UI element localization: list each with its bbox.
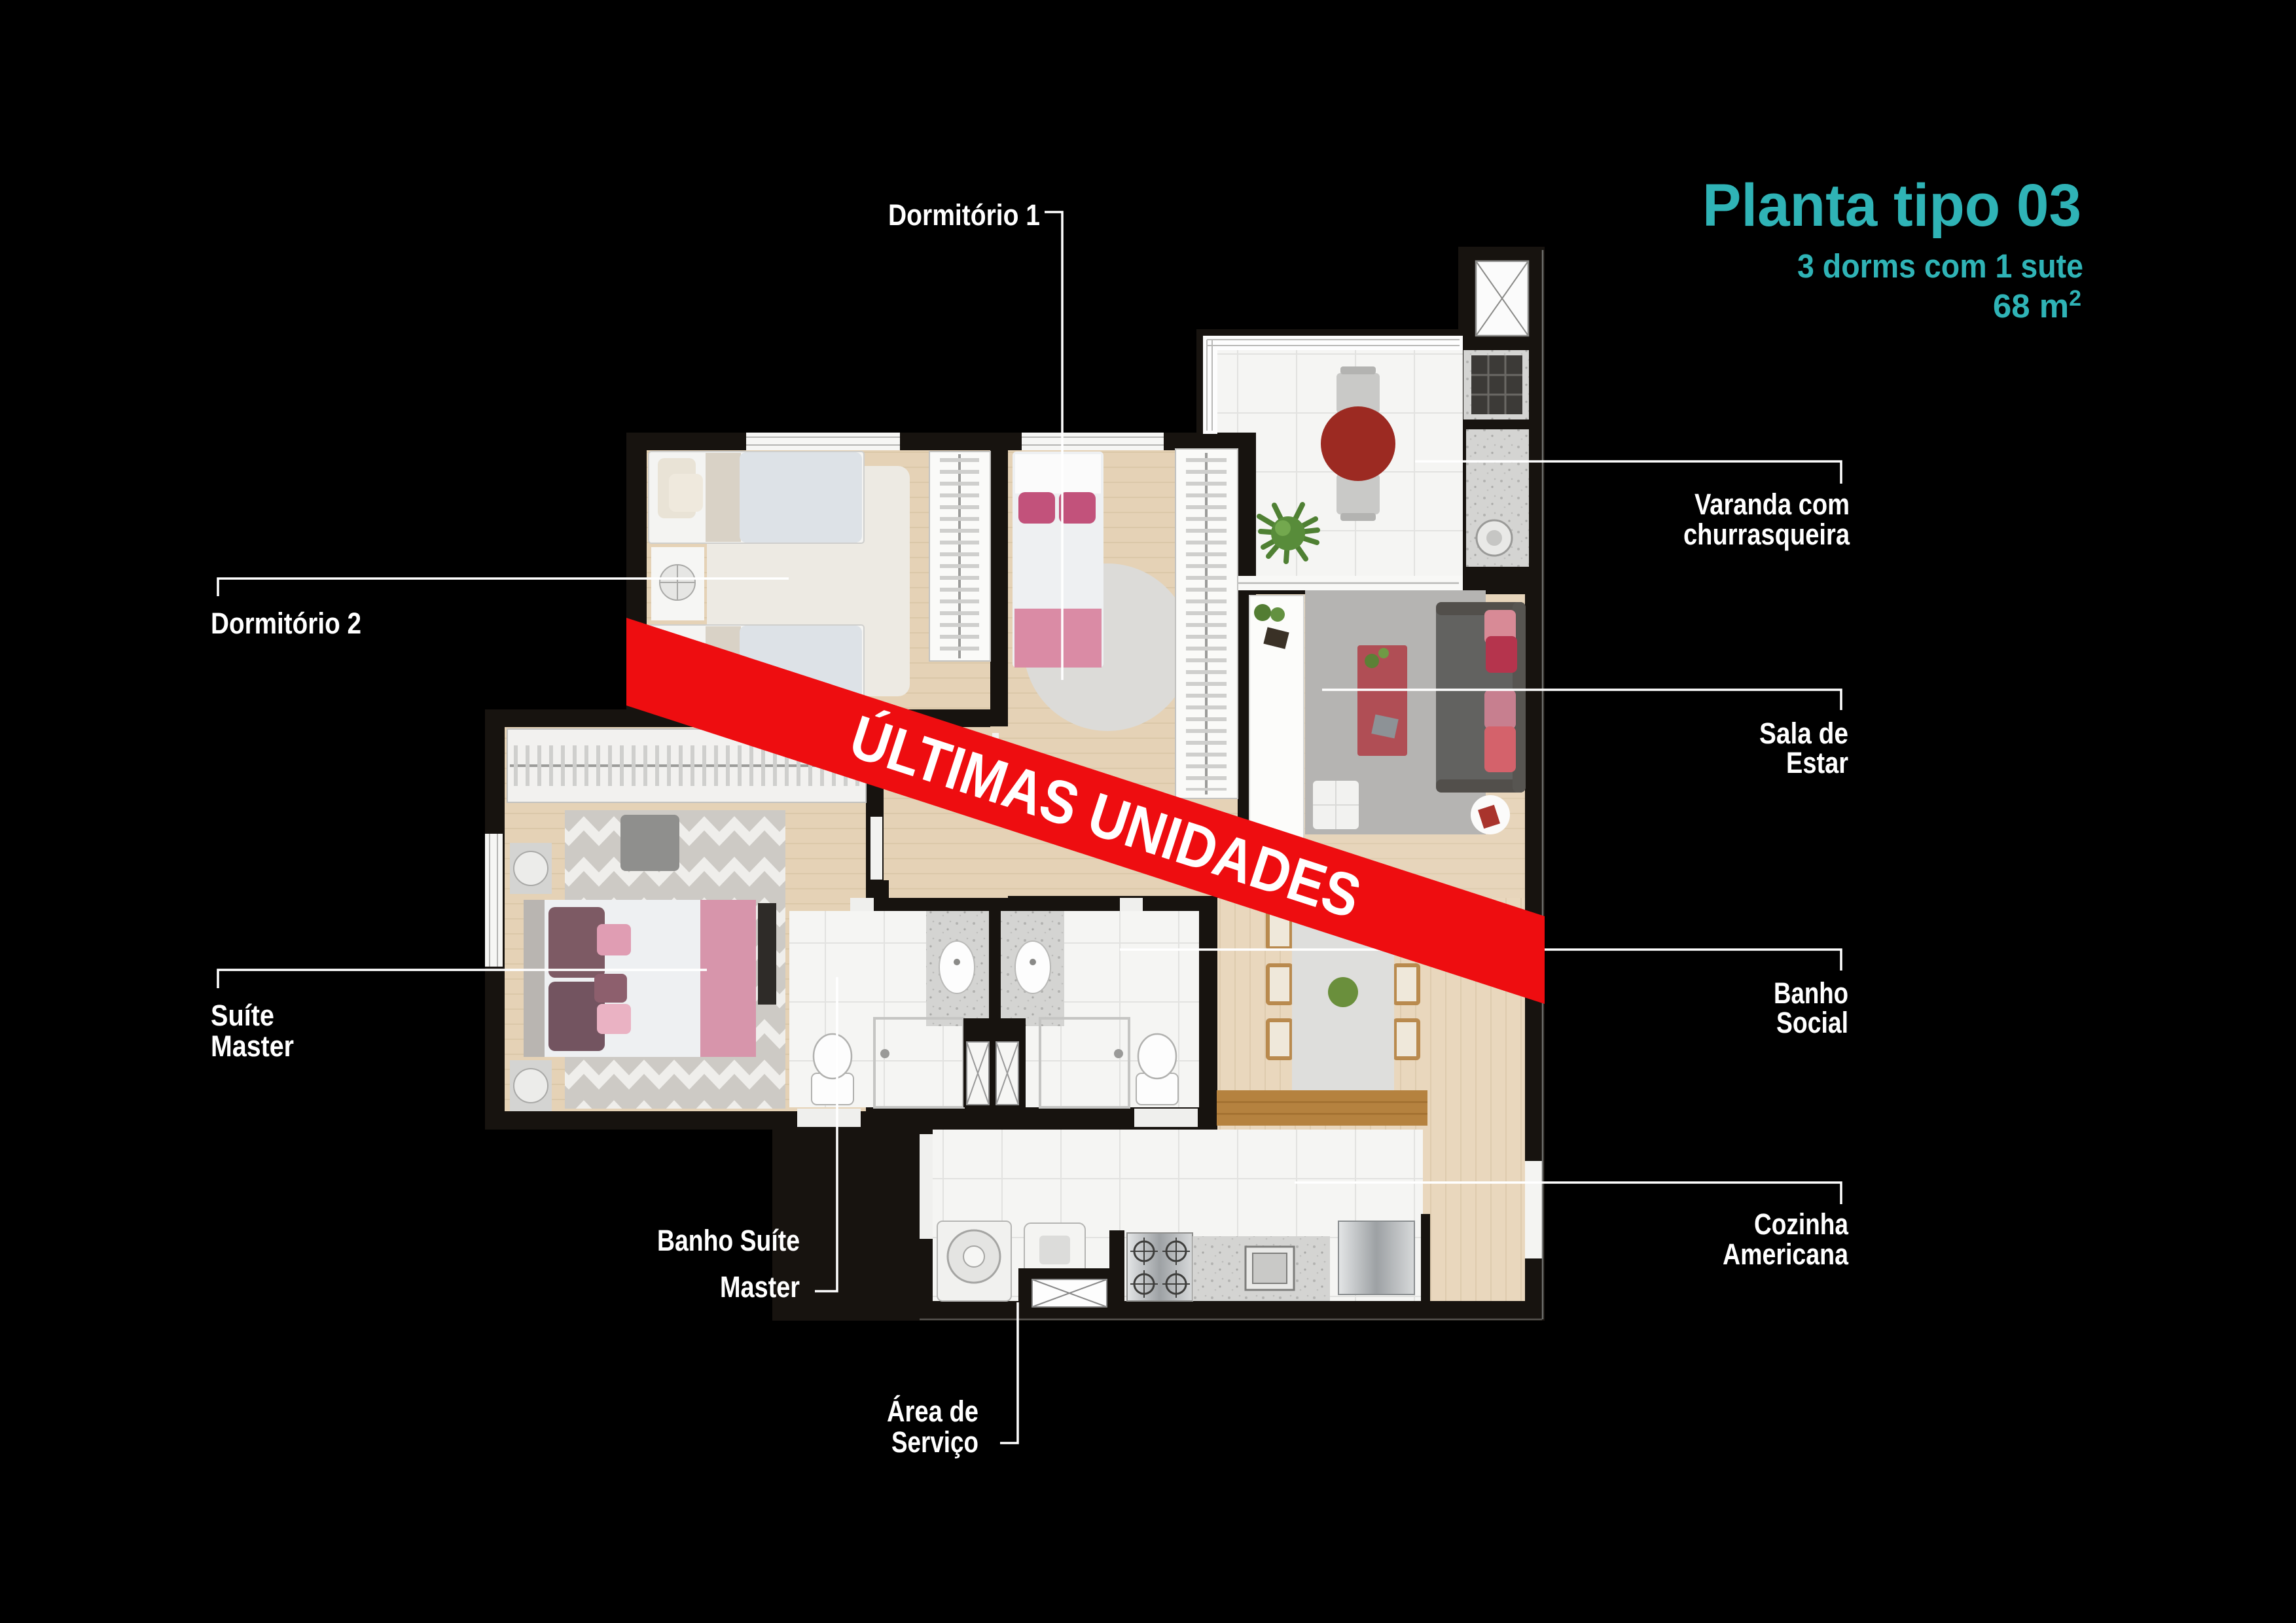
svg-text:Estar: Estar: [1786, 746, 1848, 779]
svg-text:Dormitório 1: Dormitório 1: [888, 198, 1040, 232]
svg-text:68 m2: 68 m2: [1993, 286, 2081, 325]
svg-text:Serviço: Serviço: [891, 1425, 978, 1459]
svg-text:3 dorms com 1 sute: 3 dorms com 1 sute: [1797, 247, 2083, 285]
svg-text:Cozinha: Cozinha: [1754, 1207, 1849, 1241]
svg-text:Varanda com: Varanda com: [1695, 488, 1850, 521]
svg-text:Área de: Área de: [887, 1395, 978, 1428]
svg-text:Master: Master: [720, 1270, 800, 1304]
svg-text:Master: Master: [211, 1029, 294, 1063]
svg-text:Social: Social: [1776, 1006, 1848, 1039]
svg-text:Sala de: Sala de: [1759, 717, 1848, 750]
svg-text:Planta tipo 03: Planta tipo 03: [1702, 172, 2081, 239]
svg-text:Dormitório 2: Dormitório 2: [211, 607, 361, 640]
svg-text:Banho: Banho: [1774, 976, 1848, 1010]
svg-text:churrasqueira: churrasqueira: [1683, 518, 1850, 551]
svg-text:Americana: Americana: [1723, 1238, 1849, 1271]
svg-text:Banho Suíte: Banho Suíte: [657, 1224, 800, 1257]
svg-text:Suíte: Suíte: [211, 999, 274, 1032]
